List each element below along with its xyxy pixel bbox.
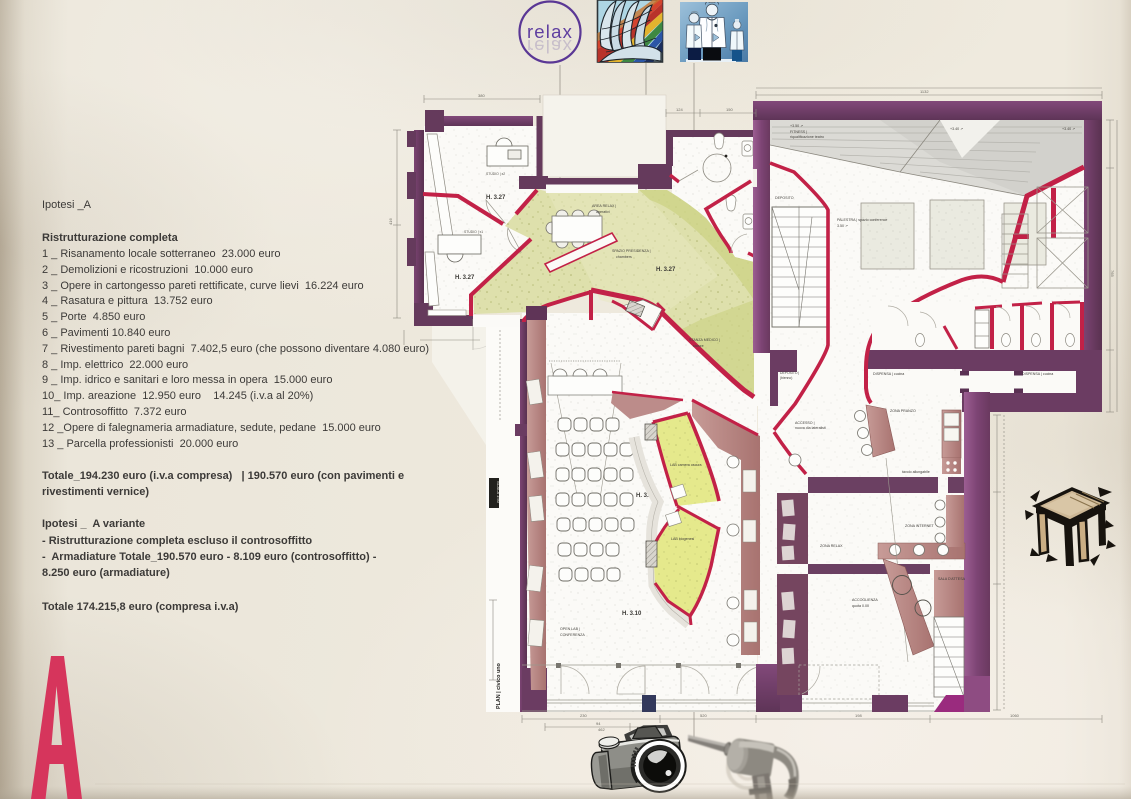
svg-text:OPEN LAB |: OPEN LAB |: [560, 627, 580, 631]
svg-text:STUDIO | x1: STUDIO | x1: [464, 230, 483, 234]
svg-text:H. 3.27: H. 3.27: [455, 275, 475, 281]
svg-text:aperativi: aperativi: [596, 210, 610, 214]
svg-text:SALA D'ATTESA: SALA D'ATTESA: [938, 577, 966, 581]
svg-text:ZONA INTERNET: ZONA INTERNET: [905, 524, 935, 528]
svg-text:ACCESSO |: ACCESSO |: [795, 421, 815, 425]
svg-text:PLAN | civico uno: PLAN | civico uno: [496, 662, 502, 709]
svg-text:462: 462: [598, 727, 605, 732]
svg-text:SPAZIO PRESIDENZA |: SPAZIO PRESIDENZA |: [612, 249, 651, 253]
svg-text:1060: 1060: [1010, 713, 1020, 718]
svg-text:416: 416: [388, 218, 393, 225]
svg-text:1132: 1132: [920, 89, 929, 94]
svg-text:FITNESS |: FITNESS |: [790, 130, 807, 134]
svg-text:94: 94: [596, 721, 601, 726]
svg-text:LAB biogenesi: LAB biogenesi: [671, 537, 694, 541]
svg-text:H. 3.27: H. 3.27: [656, 267, 676, 273]
svg-text:relax: relax: [527, 36, 573, 57]
svg-text:+3.40 ↗: +3.40 ↗: [950, 127, 963, 131]
svg-text:ZONA PRANZO: ZONA PRANZO: [890, 409, 916, 413]
svg-text:DEPOSITO: DEPOSITO: [775, 196, 794, 200]
svg-text:quota 0.00: quota 0.00: [852, 604, 869, 608]
svg-text:230: 230: [580, 713, 587, 718]
svg-text:+3.40 ↗: +3.40 ↗: [1062, 127, 1075, 131]
svg-text:DISPENSA | cucina: DISPENSA | cucina: [1022, 372, 1053, 376]
svg-text:150: 150: [726, 107, 733, 112]
svg-text:PALESTRA | spazio conference: PALESTRA | spazio conference: [837, 218, 887, 222]
svg-text:H. 3.10: H. 3.10: [622, 611, 642, 617]
svg-text:520: 520: [700, 713, 707, 718]
svg-text:CONFERENZA: CONFERENZA: [560, 633, 585, 637]
svg-text:STUDIO | x2: STUDIO | x2: [486, 172, 505, 176]
svg-text:DISPENSA | cucina: DISPENSA | cucina: [873, 372, 904, 376]
svg-text:+3.50 ↗: +3.50 ↗: [790, 124, 803, 128]
svg-text:riqualificazione teatro: riqualificazione teatro: [790, 135, 824, 139]
svg-text:ACCOGLIENZA: ACCOGLIENZA: [852, 598, 878, 602]
svg-text:SCALA 1:50: SCALA 1:50: [496, 481, 501, 504]
svg-text:ZONA RELAX: ZONA RELAX: [820, 544, 843, 548]
svg-text:nuova dia lateralisti: nuova dia lateralisti: [795, 426, 826, 430]
svg-text:DEPOSITO |: DEPOSITO |: [780, 371, 799, 375]
svg-text:380: 380: [478, 93, 485, 98]
svg-text:STANZA MEDICO |: STANZA MEDICO |: [689, 338, 720, 342]
svg-text:AREA RELAX |: AREA RELAX |: [592, 204, 616, 208]
svg-text:3.50 ↗: 3.50 ↗: [837, 224, 848, 228]
svg-text:stanze: stanze: [693, 344, 704, 348]
svg-text:chambers: chambers: [616, 255, 632, 259]
svg-text:198: 198: [855, 713, 862, 718]
svg-text:124: 124: [676, 107, 683, 112]
svg-text:765: 765: [1110, 270, 1115, 277]
svg-text:H. 3.27: H. 3.27: [486, 195, 506, 201]
svg-text:tavolo allungabile: tavolo allungabile: [902, 470, 930, 474]
svg-text:LAB camera oscura: LAB camera oscura: [670, 463, 702, 467]
svg-text:(bienno): (bienno): [780, 376, 792, 380]
